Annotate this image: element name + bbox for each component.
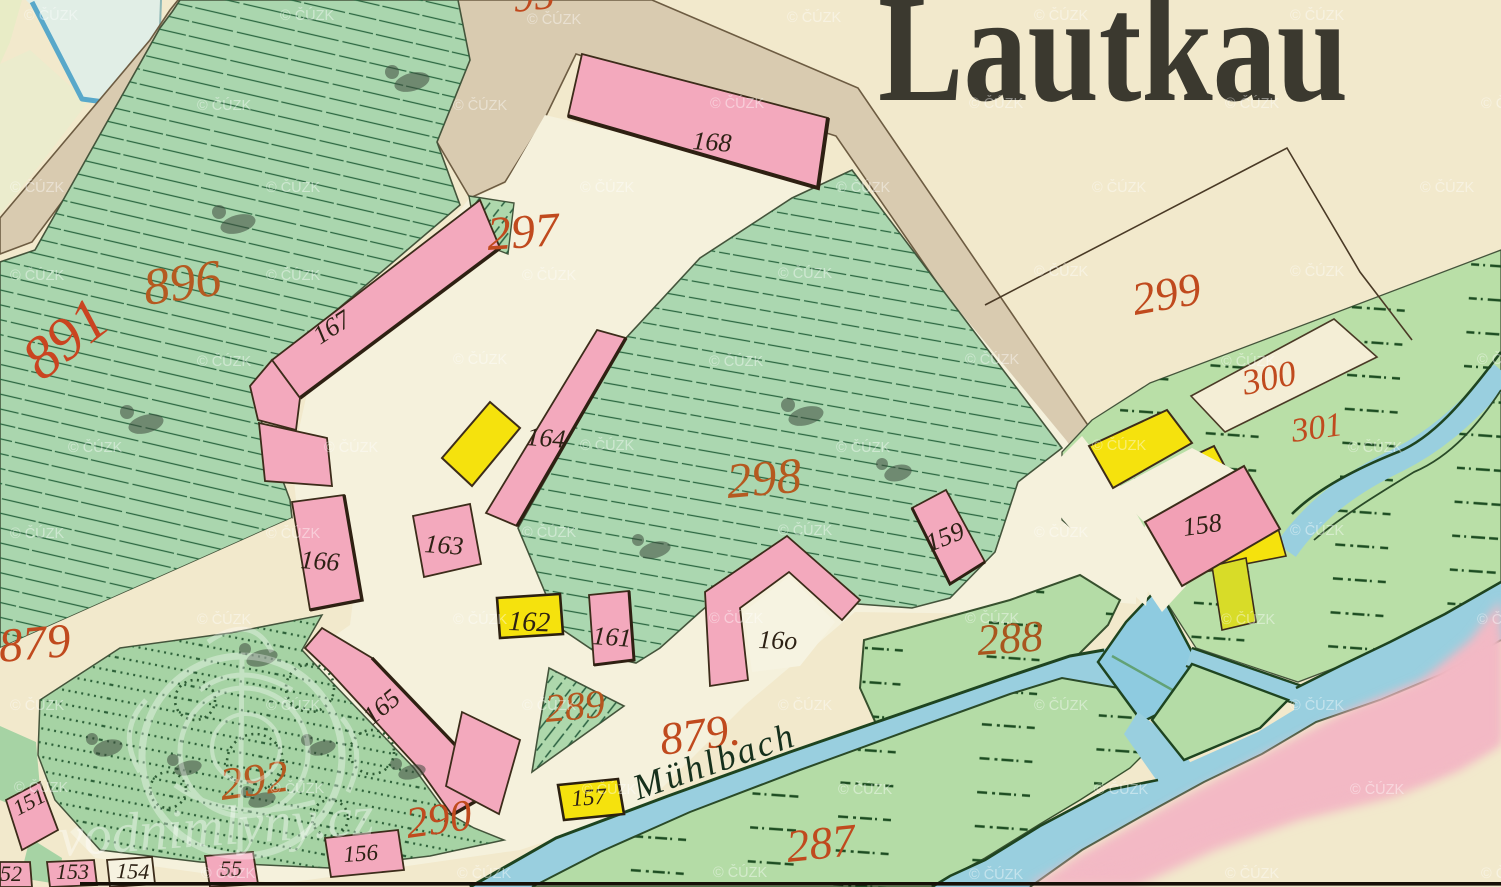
svg-text:879: 879 bbox=[0, 614, 73, 673]
svg-text:Lautkau: Lautkau bbox=[878, 0, 1348, 134]
svg-text:301: 301 bbox=[1288, 406, 1345, 450]
svg-text:166: 166 bbox=[300, 545, 341, 577]
svg-text:168: 168 bbox=[692, 126, 733, 158]
svg-text:298: 298 bbox=[724, 447, 804, 509]
svg-text:297: 297 bbox=[485, 203, 563, 261]
svg-text:163: 163 bbox=[424, 529, 465, 561]
svg-text:287: 287 bbox=[784, 814, 860, 872]
svg-text:162: 162 bbox=[508, 606, 551, 638]
svg-text:161: 161 bbox=[592, 621, 633, 653]
svg-text:158: 158 bbox=[1181, 508, 1224, 542]
svg-text:896: 896 bbox=[140, 250, 225, 317]
svg-text:290: 290 bbox=[403, 790, 475, 848]
svg-text:16o: 16o bbox=[758, 625, 798, 655]
svg-text:164: 164 bbox=[526, 422, 567, 454]
svg-text:52: 52 bbox=[0, 861, 22, 886]
